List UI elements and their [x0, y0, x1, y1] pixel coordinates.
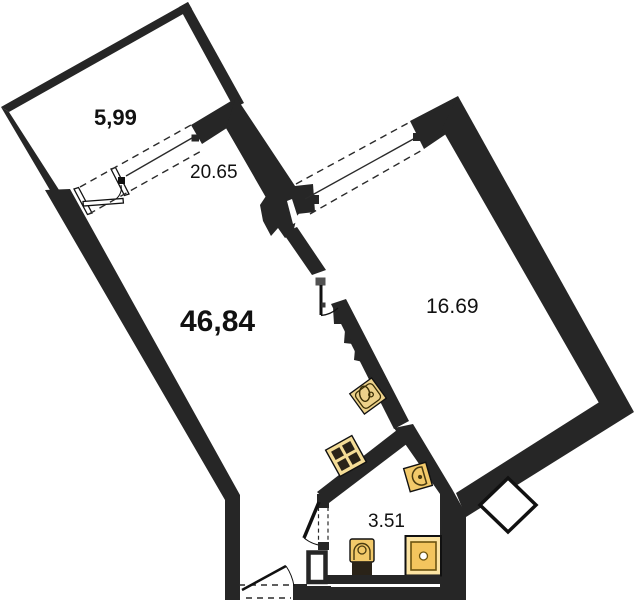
svg-text:5,99: 5,99	[94, 105, 137, 130]
svg-text:46,84: 46,84	[180, 305, 255, 338]
svg-text:3.51: 3.51	[368, 511, 405, 532]
svg-text:16.69: 16.69	[426, 295, 479, 318]
svg-text:20.65: 20.65	[190, 162, 238, 183]
